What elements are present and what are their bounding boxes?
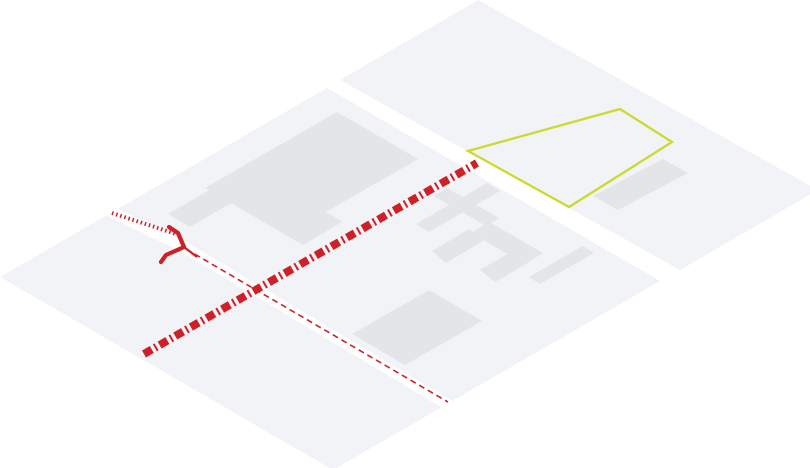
isometric-site-map — [0, 0, 810, 468]
site-map-canvas — [0, 0, 810, 468]
